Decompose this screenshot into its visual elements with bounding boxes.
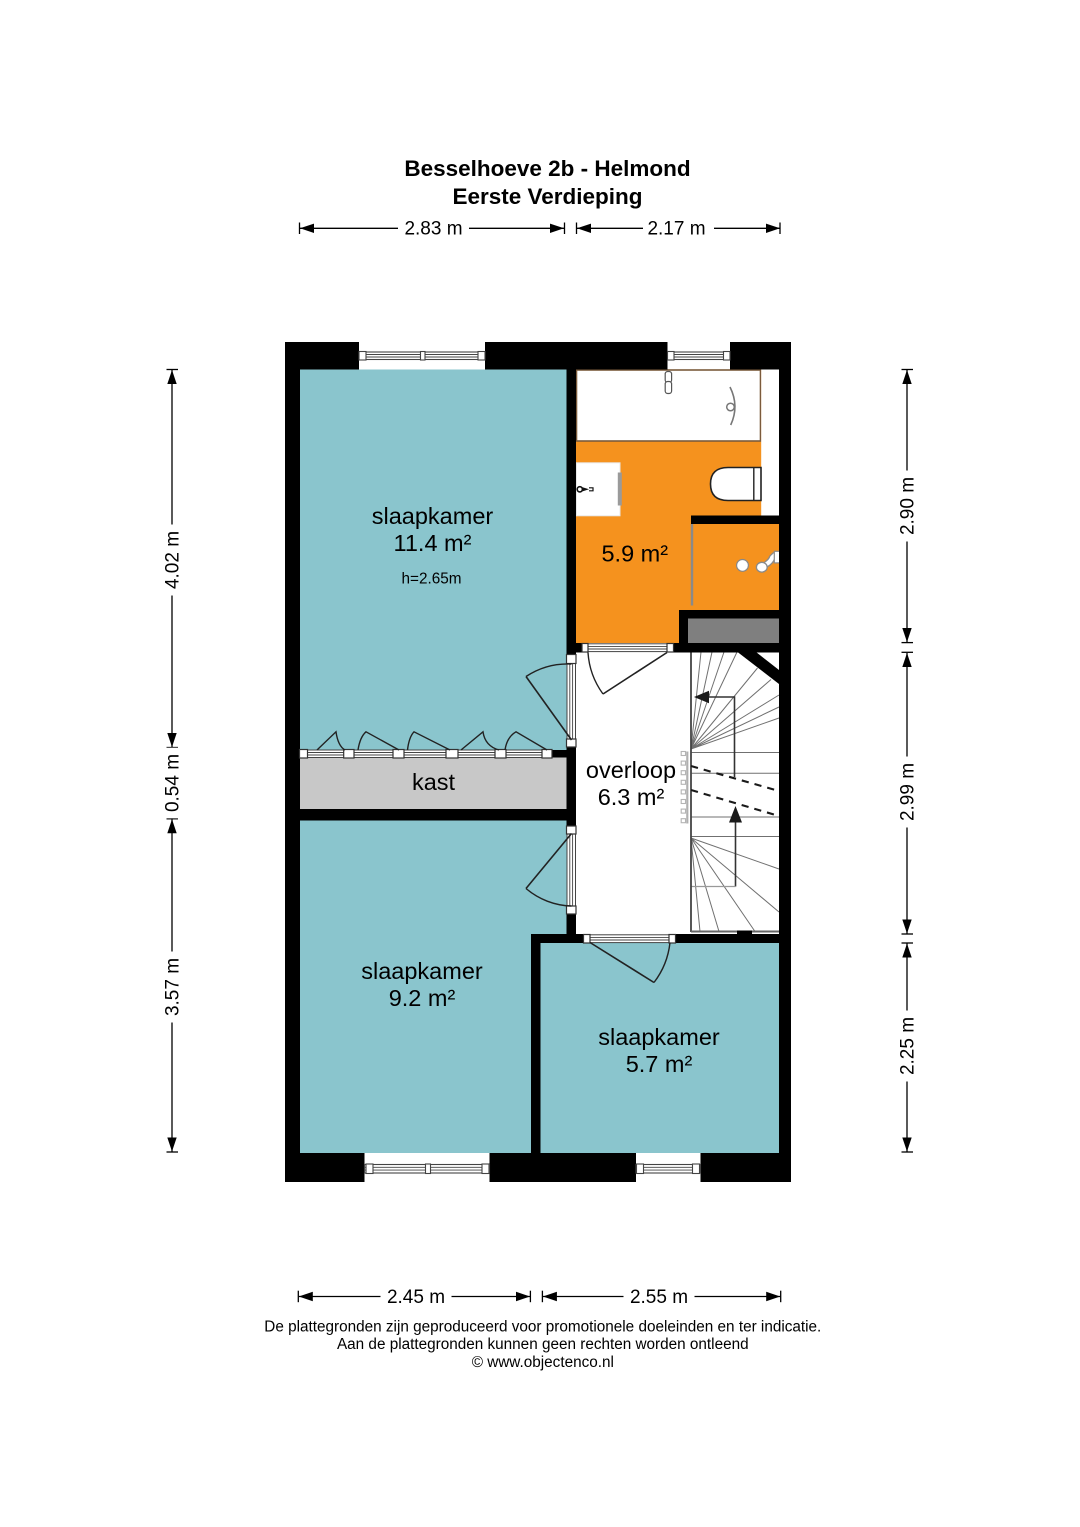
svg-text:overloop: overloop bbox=[586, 757, 676, 783]
svg-text:4.02 m: 4.02 m bbox=[163, 531, 184, 589]
svg-text:h=2.65m: h=2.65m bbox=[402, 571, 462, 588]
svg-text:3.57 m: 3.57 m bbox=[163, 958, 184, 1016]
svg-text:Eerste Verdieping: Eerste Verdieping bbox=[452, 184, 642, 209]
svg-text:6.3 m²: 6.3 m² bbox=[598, 784, 665, 810]
svg-text:kast: kast bbox=[412, 769, 456, 795]
svg-text:© www.objectenco.nl: © www.objectenco.nl bbox=[472, 1354, 614, 1371]
svg-text:5.7 m²: 5.7 m² bbox=[626, 1051, 693, 1077]
svg-text:Aan de plattegronden kunnen ge: Aan de plattegronden kunnen geen rechten… bbox=[337, 1336, 749, 1353]
svg-text:slaapkamer: slaapkamer bbox=[361, 958, 483, 984]
svg-text:Besselhoeve 2b - Helmond: Besselhoeve 2b - Helmond bbox=[404, 156, 690, 181]
svg-text:11.4 m²: 11.4 m² bbox=[394, 530, 472, 556]
svg-text:2.55 m: 2.55 m bbox=[630, 1287, 688, 1308]
svg-text:5.9 m²: 5.9 m² bbox=[601, 541, 668, 567]
svg-text:0.54 m: 0.54 m bbox=[163, 754, 184, 812]
svg-text:2.83 m: 2.83 m bbox=[404, 219, 462, 240]
svg-text:slaapkamer: slaapkamer bbox=[598, 1024, 720, 1050]
svg-text:9.2 m²: 9.2 m² bbox=[389, 985, 456, 1011]
svg-text:2.45 m: 2.45 m bbox=[387, 1287, 445, 1308]
svg-text:De plattegronden zijn geproduc: De plattegronden zijn geproduceerd voor … bbox=[264, 1318, 821, 1335]
svg-text:slaapkamer: slaapkamer bbox=[372, 503, 494, 529]
svg-text:2.90 m: 2.90 m bbox=[898, 477, 919, 535]
svg-text:2.17 m: 2.17 m bbox=[647, 219, 705, 240]
svg-text:2.25 m: 2.25 m bbox=[898, 1017, 919, 1075]
svg-text:2.99 m: 2.99 m bbox=[898, 763, 919, 821]
